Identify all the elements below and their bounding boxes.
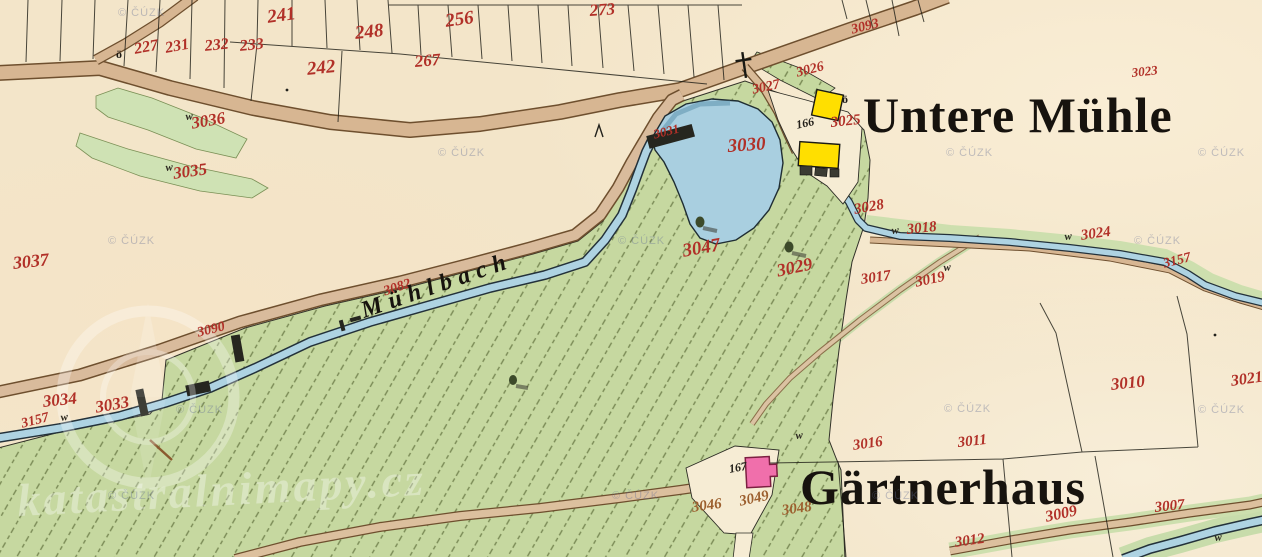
mill-building-upper [812,90,844,121]
boundary-dot [286,89,289,92]
mill-building-lower [798,142,840,169]
yard-path [733,533,753,557]
boundary-dot [1214,334,1217,337]
survey-mark [595,125,603,137]
cadastral-map[interactable]: katastralnimapy.cz 227231232233241248242… [0,0,1262,557]
